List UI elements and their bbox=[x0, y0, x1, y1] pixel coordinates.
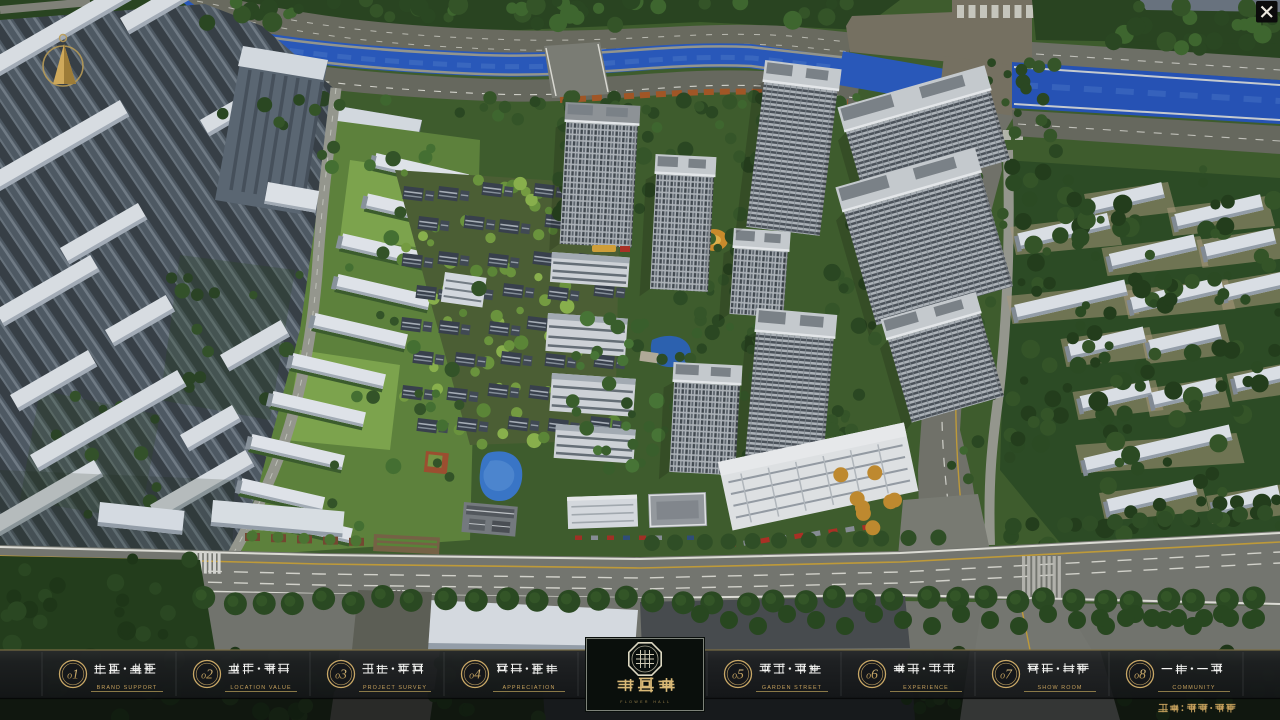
svg-text:SHOW ROOM: SHOW ROOM bbox=[1038, 685, 1083, 691]
svg-text:PROJECT SURVEY: PROJECT SURVEY bbox=[363, 685, 427, 691]
svg-text:EXPERIENCE: EXPERIENCE bbox=[903, 685, 949, 691]
svg-text:LOCATION VALUE: LOCATION VALUE bbox=[230, 685, 291, 691]
svg-text:GARDEN STREET: GARDEN STREET bbox=[762, 685, 822, 691]
svg-text:F L O W E R H A L L: F L O W E R H A L L bbox=[620, 700, 669, 704]
svg-text:APPRECIATION: APPRECIATION bbox=[503, 685, 556, 691]
svg-text:BRAND SUPPORT: BRAND SUPPORT bbox=[97, 685, 158, 691]
svg-text:COMMUNITY: COMMUNITY bbox=[1172, 685, 1215, 691]
